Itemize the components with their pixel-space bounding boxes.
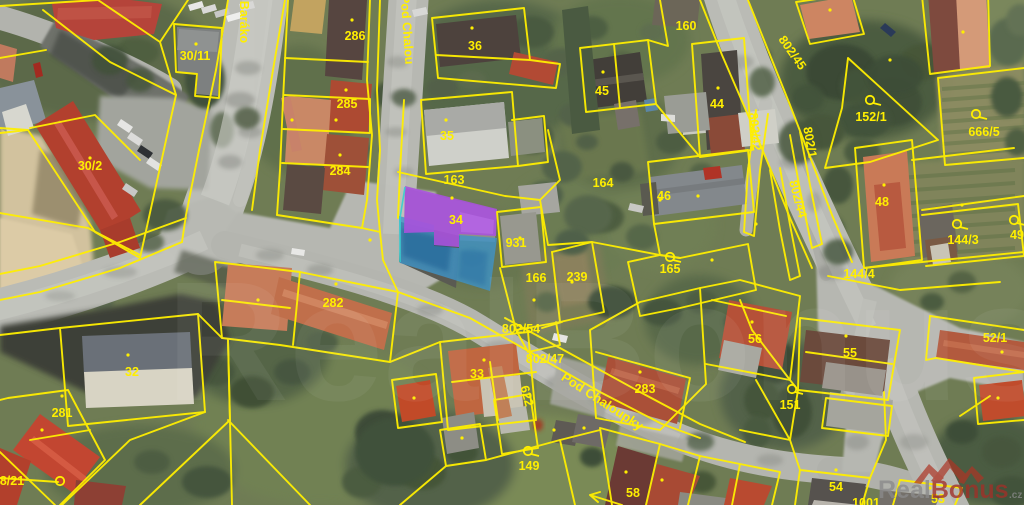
svg-text:30/2: 30/2 bbox=[78, 159, 102, 173]
svg-text:34: 34 bbox=[449, 213, 463, 227]
svg-text:281: 281 bbox=[52, 406, 73, 420]
svg-text:30/11: 30/11 bbox=[180, 49, 211, 63]
svg-text:8/21: 8/21 bbox=[0, 474, 24, 488]
svg-text:36: 36 bbox=[468, 39, 482, 53]
svg-text:285: 285 bbox=[337, 97, 358, 111]
svg-text:160: 160 bbox=[676, 19, 697, 33]
svg-text:163: 163 bbox=[444, 173, 465, 187]
svg-text:284: 284 bbox=[330, 164, 351, 178]
svg-text:32: 32 bbox=[125, 365, 139, 379]
svg-text:RealBonus: RealBonus bbox=[166, 247, 1024, 437]
svg-text:49: 49 bbox=[1010, 228, 1024, 242]
svg-text:58: 58 bbox=[626, 486, 640, 500]
svg-text:48: 48 bbox=[875, 195, 889, 209]
svg-text:46: 46 bbox=[657, 189, 671, 203]
svg-text:RealBonus: RealBonus bbox=[878, 476, 1009, 504]
svg-text:54: 54 bbox=[829, 480, 843, 494]
svg-text:35: 35 bbox=[440, 129, 454, 143]
svg-text:286: 286 bbox=[345, 29, 366, 43]
svg-text:1001: 1001 bbox=[852, 496, 880, 505]
svg-text:164: 164 bbox=[593, 176, 614, 190]
svg-text:.cz: .cz bbox=[1009, 490, 1022, 501]
svg-text:144/3: 144/3 bbox=[947, 233, 978, 247]
svg-text:666/5: 666/5 bbox=[968, 125, 999, 139]
svg-text:149: 149 bbox=[519, 459, 540, 473]
svg-text:Baráko: Baráko bbox=[237, 1, 251, 44]
svg-text:44: 44 bbox=[710, 97, 724, 111]
svg-text:45: 45 bbox=[595, 84, 609, 98]
svg-text:152/1: 152/1 bbox=[855, 110, 886, 124]
